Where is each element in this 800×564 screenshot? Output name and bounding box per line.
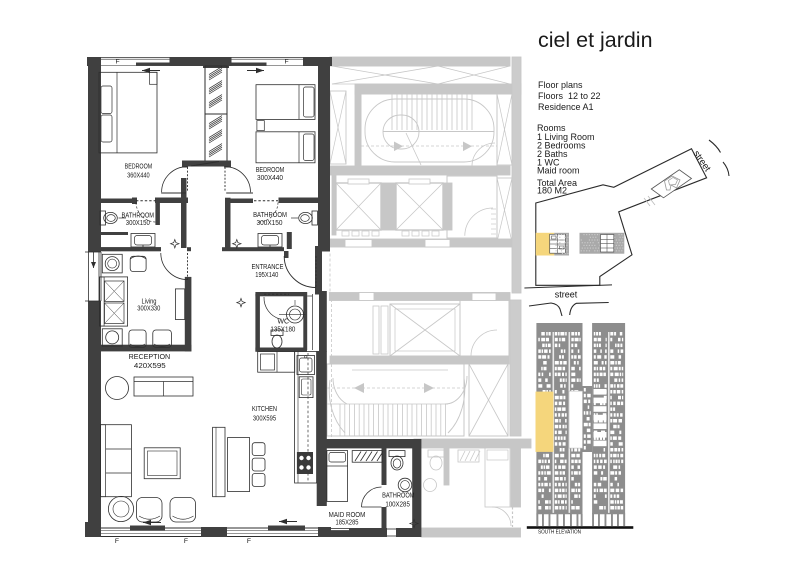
svg-text:Maid room: Maid room (537, 166, 580, 176)
svg-text:F: F (184, 538, 188, 545)
svg-text:135X180: 135X180 (270, 325, 295, 334)
svg-text:BEDROOM: BEDROOM (125, 162, 153, 171)
svg-text:BATHROOM: BATHROOM (382, 491, 414, 500)
svg-text:180 M2: 180 M2 (537, 185, 567, 195)
svg-text:300X150: 300X150 (257, 218, 283, 227)
svg-text:SOUTH ELEVATION: SOUTH ELEVATION (538, 530, 581, 536)
svg-text:Residence A1: Residence A1 (538, 102, 594, 112)
svg-text:F: F (285, 58, 289, 65)
svg-text:300X440: 300X440 (257, 173, 283, 182)
svg-text:300X150: 300X150 (126, 218, 150, 227)
svg-text:ciel et jardin: ciel et jardin (538, 28, 653, 52)
svg-text:Floors 12 to 22: Floors 12 to 22 (538, 91, 601, 101)
svg-text:Floor plans: Floor plans (538, 80, 583, 90)
svg-text:F: F (247, 538, 251, 545)
svg-text:195X140: 195X140 (255, 270, 278, 279)
svg-text:F: F (116, 58, 120, 65)
svg-text:300X595: 300X595 (253, 414, 276, 423)
svg-text:360X440: 360X440 (127, 170, 150, 179)
svg-text:KITCHEN: KITCHEN (252, 404, 277, 413)
svg-text:100X285: 100X285 (385, 500, 410, 509)
svg-text:street: street (555, 289, 578, 299)
svg-text:RECEPTION: RECEPTION (129, 352, 171, 361)
svg-text:300X330: 300X330 (137, 303, 160, 312)
svg-text:420X595: 420X595 (134, 361, 166, 370)
svg-text:185X285: 185X285 (336, 518, 359, 527)
svg-text:F: F (115, 538, 119, 545)
